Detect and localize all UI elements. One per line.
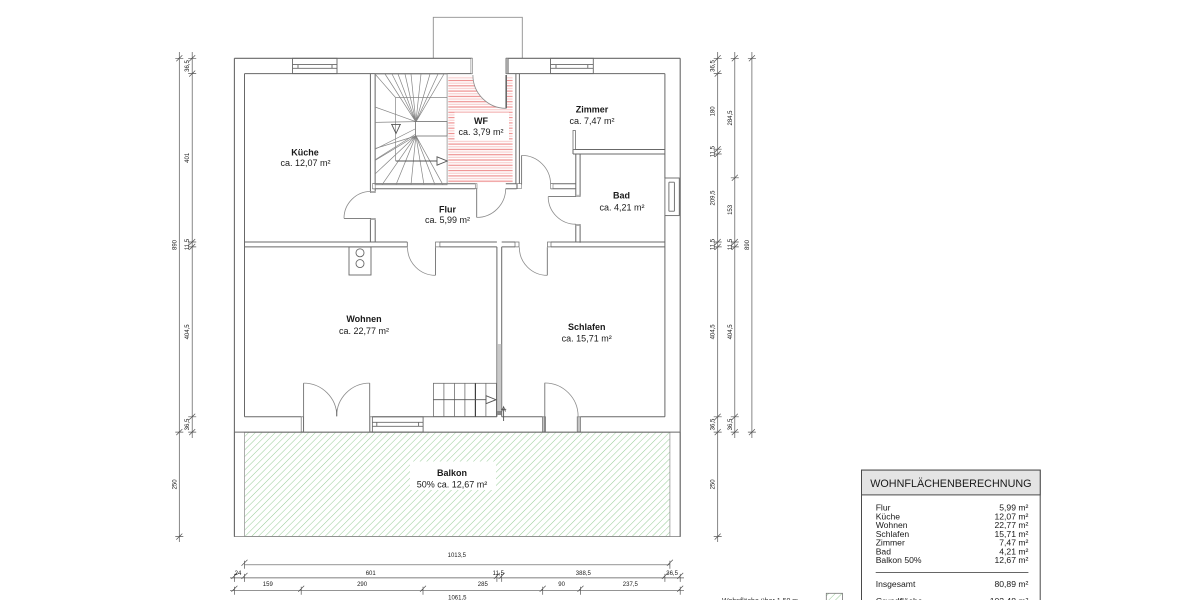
svg-text:ca. 5,99 m²: ca. 5,99 m² <box>425 215 470 225</box>
svg-text:WF: WF <box>474 116 488 126</box>
svg-text:601: 601 <box>366 571 377 577</box>
svg-text:WOHNFLÄCHENBERECHNUNG: WOHNFLÄCHENBERECHNUNG <box>870 478 1031 490</box>
svg-text:Flur: Flur <box>439 204 456 214</box>
svg-text:Balkon: Balkon <box>437 468 467 478</box>
svg-text:36,5: 36,5 <box>728 418 734 430</box>
svg-text:90: 90 <box>558 582 565 588</box>
svg-text:890: 890 <box>172 239 178 250</box>
svg-text:24: 24 <box>235 571 242 577</box>
svg-text:36,5: 36,5 <box>666 571 678 577</box>
svg-text:36,5: 36,5 <box>711 418 717 430</box>
svg-text:285: 285 <box>478 582 489 588</box>
svg-text:Wohnen: Wohnen <box>346 314 381 324</box>
svg-text:ca. 4,21 m²: ca. 4,21 m² <box>599 203 644 213</box>
svg-text:Bad: Bad <box>613 190 630 200</box>
svg-text:Zimmer: Zimmer <box>576 105 609 115</box>
svg-text:ca. 3,79 m²: ca. 3,79 m² <box>458 127 503 137</box>
svg-text:284,5: 284,5 <box>728 110 734 126</box>
svg-text:102,48 m²: 102,48 m² <box>990 596 1029 600</box>
svg-text:1013,5: 1013,5 <box>448 553 467 559</box>
svg-text:ca. 22,77 m²: ca. 22,77 m² <box>339 326 389 336</box>
svg-text:401: 401 <box>185 152 191 163</box>
svg-text:80,89 m²: 80,89 m² <box>994 579 1028 589</box>
svg-text:11,5: 11,5 <box>185 238 191 250</box>
svg-text:Schlafen: Schlafen <box>568 322 606 332</box>
svg-text:159: 159 <box>263 582 274 588</box>
svg-text:12,67 m²: 12,67 m² <box>994 555 1028 565</box>
svg-text:Insgesamt: Insgesamt <box>876 579 916 589</box>
svg-text:Balkon 50%: Balkon 50% <box>876 555 922 565</box>
svg-text:36,5: 36,5 <box>711 60 717 72</box>
svg-text:ca. 15,71 m²: ca. 15,71 m² <box>562 334 612 344</box>
svg-text:237,5: 237,5 <box>623 582 639 588</box>
svg-text:Küche: Küche <box>291 147 319 157</box>
svg-text:36,5: 36,5 <box>185 60 191 72</box>
svg-text:890: 890 <box>745 239 751 250</box>
svg-text:404,5: 404,5 <box>728 324 734 340</box>
svg-text:11,5: 11,5 <box>493 571 505 577</box>
svg-text:Grundfläche: Grundfläche <box>876 596 923 600</box>
svg-text:36,5: 36,5 <box>185 418 191 430</box>
svg-text:11,5: 11,5 <box>711 145 717 157</box>
svg-text:50% ca. 12,67 m²: 50% ca. 12,67 m² <box>417 480 488 490</box>
svg-text:404,5: 404,5 <box>711 324 717 340</box>
svg-text:250: 250 <box>172 479 178 490</box>
svg-text:11,5: 11,5 <box>711 238 717 250</box>
svg-text:388,5: 388,5 <box>576 571 592 577</box>
svg-text:1061,5: 1061,5 <box>448 595 467 600</box>
svg-text:153: 153 <box>728 204 734 215</box>
svg-text:209,5: 209,5 <box>711 190 717 206</box>
svg-text:250: 250 <box>711 479 717 490</box>
svg-text:290: 290 <box>357 582 368 588</box>
svg-text:11,5: 11,5 <box>728 238 734 250</box>
svg-text:ca. 7,47 m²: ca. 7,47 m² <box>569 116 614 126</box>
svg-text:180: 180 <box>711 106 717 117</box>
svg-text:ca. 12,07 m²: ca. 12,07 m² <box>280 158 330 168</box>
svg-text:404,5: 404,5 <box>185 324 191 340</box>
